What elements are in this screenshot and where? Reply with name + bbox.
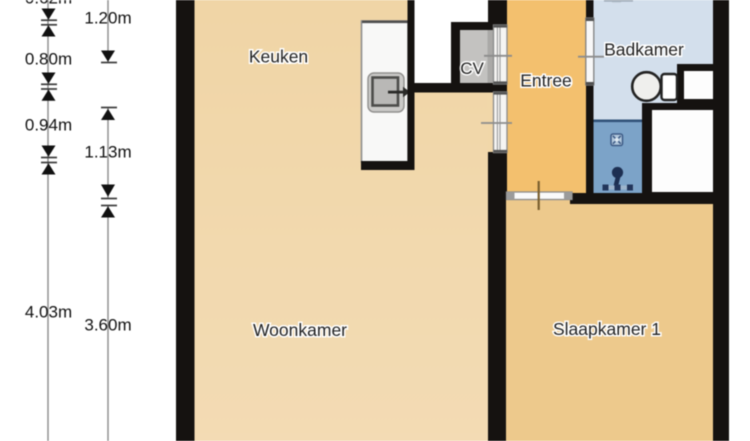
svg-text:0.62m: 0.62m (25, 0, 72, 8)
svg-text:1.13m: 1.13m (84, 143, 131, 162)
svg-text:Badkamer: Badkamer (604, 40, 684, 60)
svg-text:1.20m: 1.20m (84, 9, 131, 28)
svg-text:0.94m: 0.94m (25, 116, 72, 135)
svg-text:4.03m: 4.03m (25, 303, 72, 322)
svg-text:Entree: Entree (520, 71, 572, 91)
svg-text:3.60m: 3.60m (84, 316, 131, 335)
svg-text:0.80m: 0.80m (25, 50, 72, 69)
svg-text:CV: CV (460, 59, 484, 78)
svg-text:Keuken: Keuken (249, 47, 308, 67)
svg-text:Woonkamer: Woonkamer (253, 320, 347, 340)
svg-text:Slaapkamer 1: Slaapkamer 1 (553, 319, 661, 339)
